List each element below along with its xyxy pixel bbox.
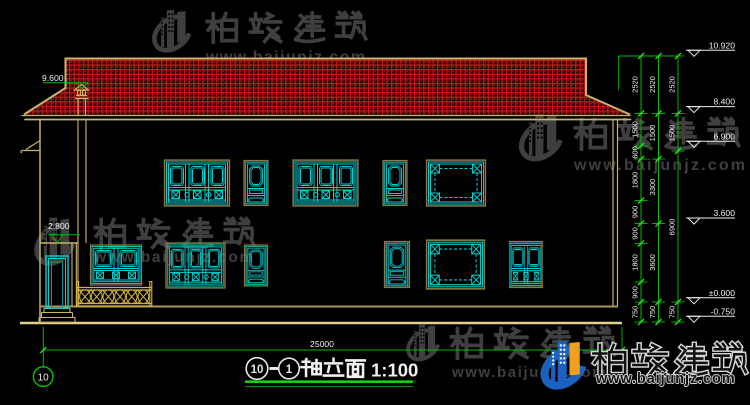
svg-text:www.baijunjz.com: www.baijunjz.com [595, 371, 736, 387]
